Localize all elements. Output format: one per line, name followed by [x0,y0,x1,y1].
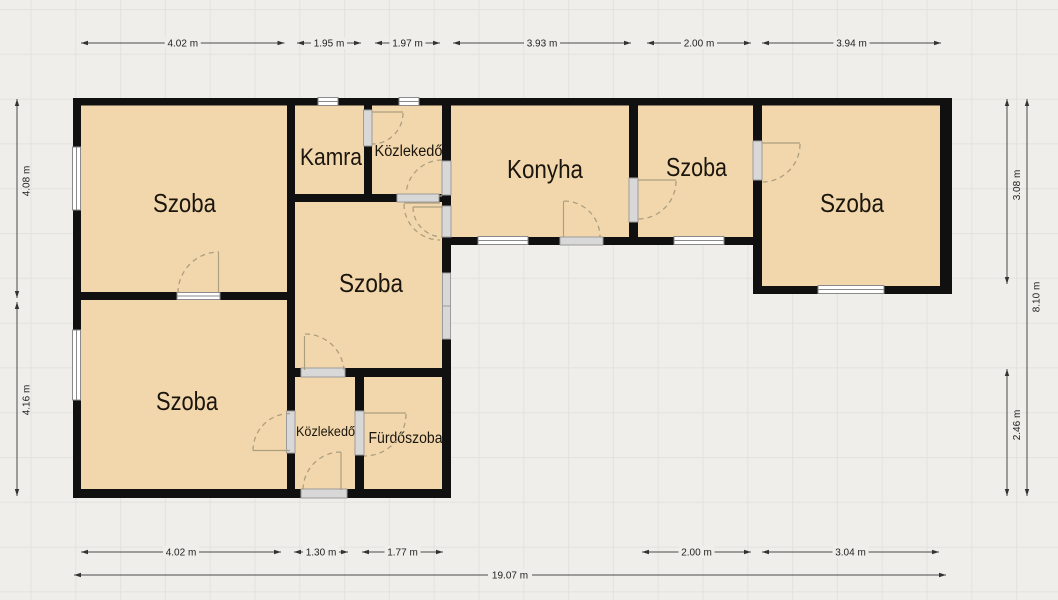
svg-text:4.16 m: 4.16 m [22,385,33,416]
svg-text:3.93 m: 3.93 m [527,39,558,50]
svg-text:3.94 m: 3.94 m [836,39,867,50]
svg-text:4.08 m: 4.08 m [22,166,33,197]
svg-text:3.08 m: 3.08 m [1012,170,1023,201]
svg-text:2.00 m: 2.00 m [684,39,715,50]
svg-text:1.95 m: 1.95 m [314,39,345,50]
svg-text:1.77 m: 1.77 m [387,548,418,559]
svg-text:8.10 m: 8.10 m [1032,282,1043,313]
svg-text:Konyha: Konyha [507,154,583,184]
svg-text:4.02 m: 4.02 m [167,39,198,50]
svg-text:19.07 m: 19.07 m [492,571,528,582]
svg-text:Közlekedő: Közlekedő [375,143,443,160]
svg-text:4.02 m: 4.02 m [166,548,197,559]
svg-text:Közlekedő: Közlekedő [296,424,355,439]
svg-text:Szoba: Szoba [820,188,884,218]
svg-text:1.30 m: 1.30 m [306,548,337,559]
svg-text:Szoba: Szoba [339,268,403,298]
svg-text:Szoba: Szoba [666,152,727,182]
svg-text:2.00 m: 2.00 m [681,548,712,559]
svg-text:Fürdőszoba: Fürdőszoba [369,430,443,447]
svg-text:3.04 m: 3.04 m [835,548,866,559]
svg-text:2.46 m: 2.46 m [1012,410,1023,441]
svg-text:1.97 m: 1.97 m [392,39,423,50]
svg-text:Szoba: Szoba [156,386,218,416]
svg-text:Szoba: Szoba [153,188,216,218]
svg-text:Kamra: Kamra [300,144,363,171]
